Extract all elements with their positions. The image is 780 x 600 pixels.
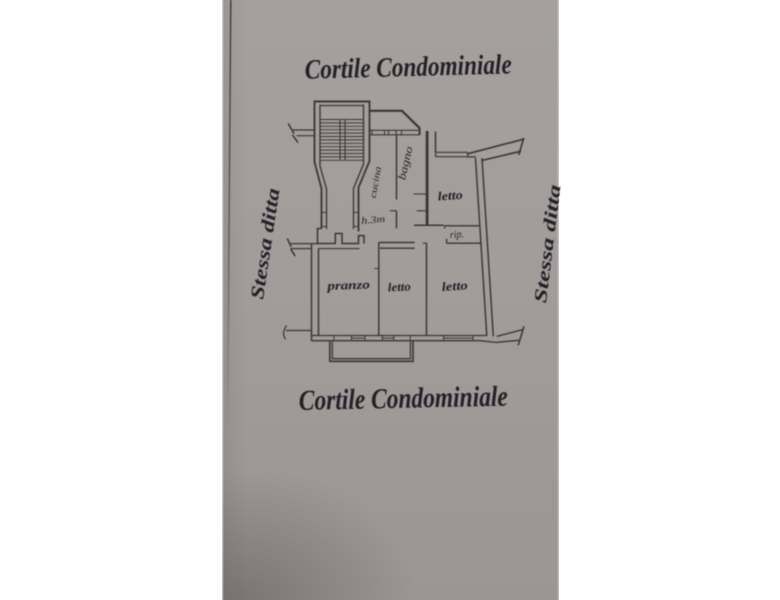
- svg-text:Cortile Condominiale: Cortile Condominiale: [298, 381, 508, 417]
- svg-text:Cortile Condominiale: Cortile Condominiale: [304, 49, 512, 85]
- svg-text:rip.: rip.: [450, 229, 465, 241]
- svg-text:cucina: cucina: [368, 165, 384, 199]
- svg-text:letto: letto: [437, 188, 463, 204]
- svg-text:Stessa ditta: Stessa ditta: [530, 183, 564, 304]
- svg-text:h.3m: h.3m: [361, 214, 386, 227]
- svg-text:letto: letto: [441, 278, 468, 294]
- svg-text:Stessa ditta: Stessa ditta: [247, 186, 284, 300]
- svg-text:pranzo: pranzo: [326, 278, 370, 294]
- svg-text:bagno: bagno: [396, 145, 415, 181]
- svg-text:letto: letto: [387, 279, 411, 294]
